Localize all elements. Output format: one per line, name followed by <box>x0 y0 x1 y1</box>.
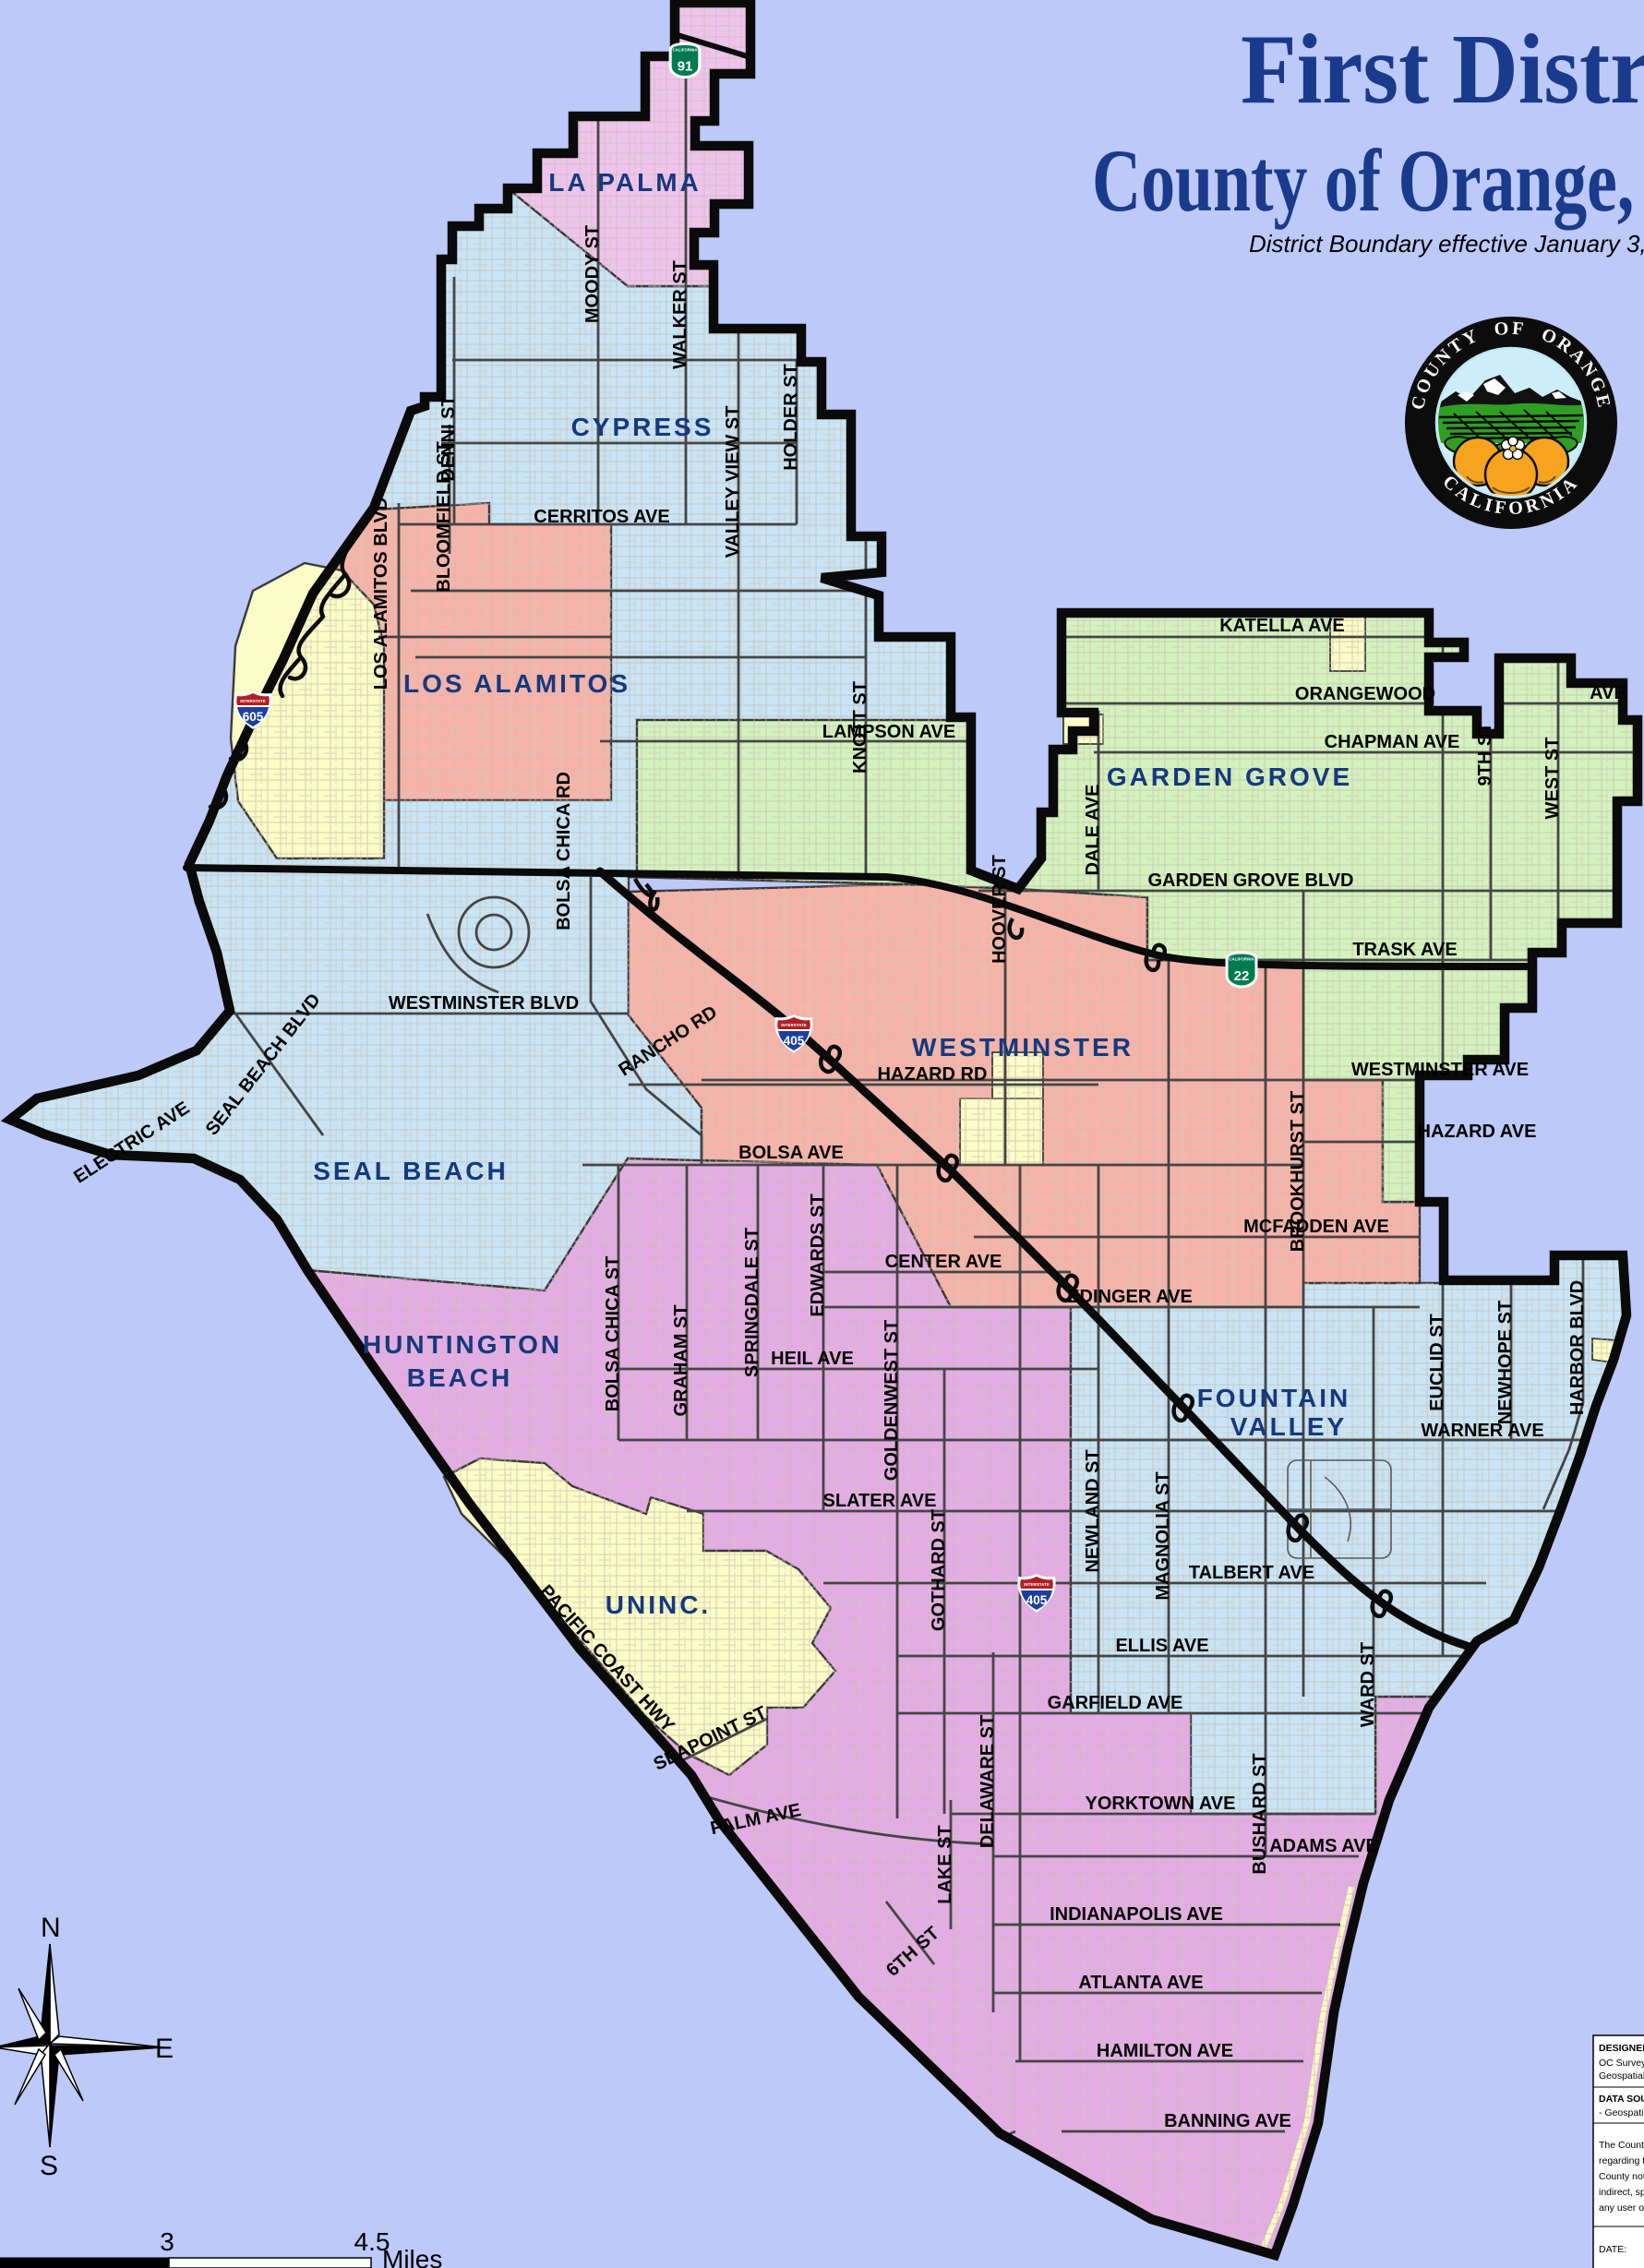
svg-text:CYPRESS: CYPRESS <box>571 413 714 441</box>
svg-text:LA PALMA: LA PALMA <box>548 168 702 197</box>
svg-text:NEWHOPE ST: NEWHOPE ST <box>1495 1301 1516 1424</box>
svg-text:HOLDER ST: HOLDER ST <box>781 364 801 471</box>
svg-text:WESTMINSTER: WESTMINSTER <box>912 1033 1134 1062</box>
svg-text:MCFADDEN AVE: MCFADDEN AVE <box>1243 1217 1389 1237</box>
svg-text:ADAMS AVE: ADAMS AVE <box>1269 1836 1378 1856</box>
svg-text:E: E <box>155 2034 174 2064</box>
svg-text:ELLIS AVE: ELLIS AVE <box>1115 1636 1208 1656</box>
svg-text:VALLEY: VALLEY <box>1230 1412 1347 1441</box>
svg-text:LOS ALAMITOS: LOS ALAMITOS <box>403 669 630 698</box>
svg-text:GRAHAM ST: GRAHAM ST <box>671 1304 691 1416</box>
svg-text:HAZARD RD: HAZARD RD <box>878 1064 988 1085</box>
svg-text:HAZARD AVE: HAZARD AVE <box>1418 1122 1537 1142</box>
svg-text:regarding t: regarding t <box>1599 2155 1644 2166</box>
svg-text:LOS ALAMITOS BLVD: LOS ALAMITOS BLVD <box>371 498 391 690</box>
svg-text:HEIL AVE: HEIL AVE <box>771 1349 854 1369</box>
svg-text:indirect, sp: indirect, sp <box>1599 2187 1644 2198</box>
svg-text:DATA SOU: DATA SOU <box>1599 2094 1644 2105</box>
svg-text:- Geospatia: - Geospatia <box>1599 2107 1644 2118</box>
svg-text:FOUNTAIN: FOUNTAIN <box>1197 1384 1351 1412</box>
svg-text:ATLANTA AVE: ATLANTA AVE <box>1078 1973 1203 1993</box>
svg-text:HUNTINGTON: HUNTINGTON <box>363 1330 562 1359</box>
svg-text:DATE:: DATE: <box>1599 2244 1626 2255</box>
svg-text:EDINGER AVE: EDINGER AVE <box>1067 1287 1193 1307</box>
svg-text:405: 405 <box>784 1034 805 1048</box>
svg-text:GOTHARD ST: GOTHARD ST <box>929 1509 949 1631</box>
svg-text:County of Orange, California: County of Orange, California <box>1092 131 1644 230</box>
svg-text:CENTER AVE: CENTER AVE <box>885 1252 1002 1272</box>
svg-text:TRASK AVE: TRASK AVE <box>1352 940 1457 960</box>
svg-text:HOOVER ST: HOOVER ST <box>990 855 1010 964</box>
svg-text:WEST ST: WEST ST <box>1542 738 1563 820</box>
svg-text:EUCLID ST: EUCLID ST <box>1427 1314 1447 1411</box>
svg-text:UNINC.: UNINC. <box>606 1590 711 1619</box>
svg-text:EDWARDS ST: EDWARDS ST <box>808 1194 828 1316</box>
svg-text:405: 405 <box>1026 1593 1048 1607</box>
svg-text:GARDEN GROVE BLVD: GARDEN GROVE BLVD <box>1148 870 1354 891</box>
svg-text:WESTMINSTER AVE: WESTMINSTER AVE <box>1351 1060 1529 1080</box>
svg-text:NEWLAND ST: NEWLAND ST <box>1083 1449 1103 1572</box>
svg-text:LAMPSON AVE: LAMPSON AVE <box>822 722 955 742</box>
svg-text:GOLDENWEST ST: GOLDENWEST ST <box>882 1320 902 1481</box>
svg-text:WALKER ST: WALKER ST <box>670 260 690 369</box>
svg-text:BLOOMFIELD ST: BLOOMFIELD ST <box>434 441 454 592</box>
svg-text:BOLSA CHICA RD: BOLSA CHICA RD <box>554 772 574 930</box>
svg-text:HARBOR BLVD: HARBOR BLVD <box>1567 1280 1588 1415</box>
svg-text:District Boundary effective Ja: District Boundary effective January 3, 2… <box>1249 230 1644 258</box>
svg-text:CERRITOS AVE: CERRITOS AVE <box>534 507 669 527</box>
svg-text:CALIFORNIA: CALIFORNIA <box>672 47 698 52</box>
svg-text:SLATER AVE: SLATER AVE <box>823 1491 937 1511</box>
svg-text:HAMILTON AVE: HAMILTON AVE <box>1097 2041 1233 2061</box>
svg-text:Geospatial: Geospatial <box>1599 2070 1644 2082</box>
svg-text:DESIGNED: DESIGNED <box>1599 2043 1644 2054</box>
svg-text:TALBERT AVE: TALBERT AVE <box>1189 1563 1314 1583</box>
svg-text:CHAPMAN AVE: CHAPMAN AVE <box>1325 732 1460 752</box>
svg-text:9TH ST: 9TH ST <box>1475 723 1495 786</box>
svg-text:MAGNOLIA ST: MAGNOLIA ST <box>1153 1471 1173 1600</box>
svg-text:BANNING AVE: BANNING AVE <box>1164 2111 1291 2131</box>
svg-text:WESTMINSTER BLVD: WESTMINSTER BLVD <box>389 993 579 1014</box>
svg-text:DELAWARE ST: DELAWARE ST <box>978 1715 998 1848</box>
svg-text:LAKE ST: LAKE ST <box>935 1825 955 1904</box>
svg-text:AVE: AVE <box>1590 683 1626 703</box>
svg-text:WARNER AVE: WARNER AVE <box>1421 1421 1543 1441</box>
svg-text:The County: The County <box>1599 2140 1644 2151</box>
svg-text:91: 91 <box>678 59 693 75</box>
svg-text:DALE AVE: DALE AVE <box>1083 785 1103 876</box>
svg-text:605: 605 <box>243 710 264 724</box>
svg-text:County not: County not <box>1599 2171 1644 2182</box>
svg-text:KATELLA AVE: KATELLA AVE <box>1219 616 1345 636</box>
svg-text:VALLEY VIEW ST: VALLEY VIEW ST <box>723 406 743 558</box>
svg-text:BOLSA CHICA ST: BOLSA CHICA ST <box>603 1256 623 1412</box>
svg-text:SPRINGDALE ST: SPRINGDALE ST <box>742 1228 762 1377</box>
svg-text:any user o: any user o <box>1599 2202 1644 2214</box>
svg-text:BOLSA AVE: BOLSA AVE <box>738 1143 844 1163</box>
svg-text:S: S <box>40 2151 58 2181</box>
svg-text:INDIANAPOLIS AVE: INDIANAPOLIS AVE <box>1050 1904 1223 1925</box>
svg-text:CALIFORNIA: CALIFORNIA <box>1229 957 1254 962</box>
svg-text:GARFIELD AVE: GARFIELD AVE <box>1048 1693 1183 1713</box>
svg-text:Miles: Miles <box>382 2245 442 2268</box>
svg-text:OC Survey: OC Survey <box>1599 2058 1644 2069</box>
svg-text:INTERSTATE: INTERSTATE <box>781 1023 807 1027</box>
svg-text:N: N <box>41 1913 61 1943</box>
svg-text:MOODY ST: MOODY ST <box>582 225 603 323</box>
svg-text:22: 22 <box>1234 968 1250 984</box>
svg-text:BUSHARD ST: BUSHARD ST <box>1250 1753 1270 1874</box>
svg-text:BEACH: BEACH <box>407 1363 513 1392</box>
svg-text:3: 3 <box>160 2227 174 2256</box>
svg-text:INTERSTATE: INTERSTATE <box>240 699 266 703</box>
svg-text:WARD ST: WARD ST <box>1358 1642 1378 1727</box>
svg-text:SEAL BEACH: SEAL BEACH <box>313 1157 509 1185</box>
svg-text:First District: First District <box>1241 15 1644 125</box>
svg-text:ORANGEWOOD: ORANGEWOOD <box>1295 684 1435 704</box>
svg-text:GARDEN GROVE: GARDEN GROVE <box>1107 762 1352 791</box>
svg-text:YORKTOWN AVE: YORKTOWN AVE <box>1086 1794 1236 1814</box>
svg-text:INTERSTATE: INTERSTATE <box>1024 1582 1050 1587</box>
